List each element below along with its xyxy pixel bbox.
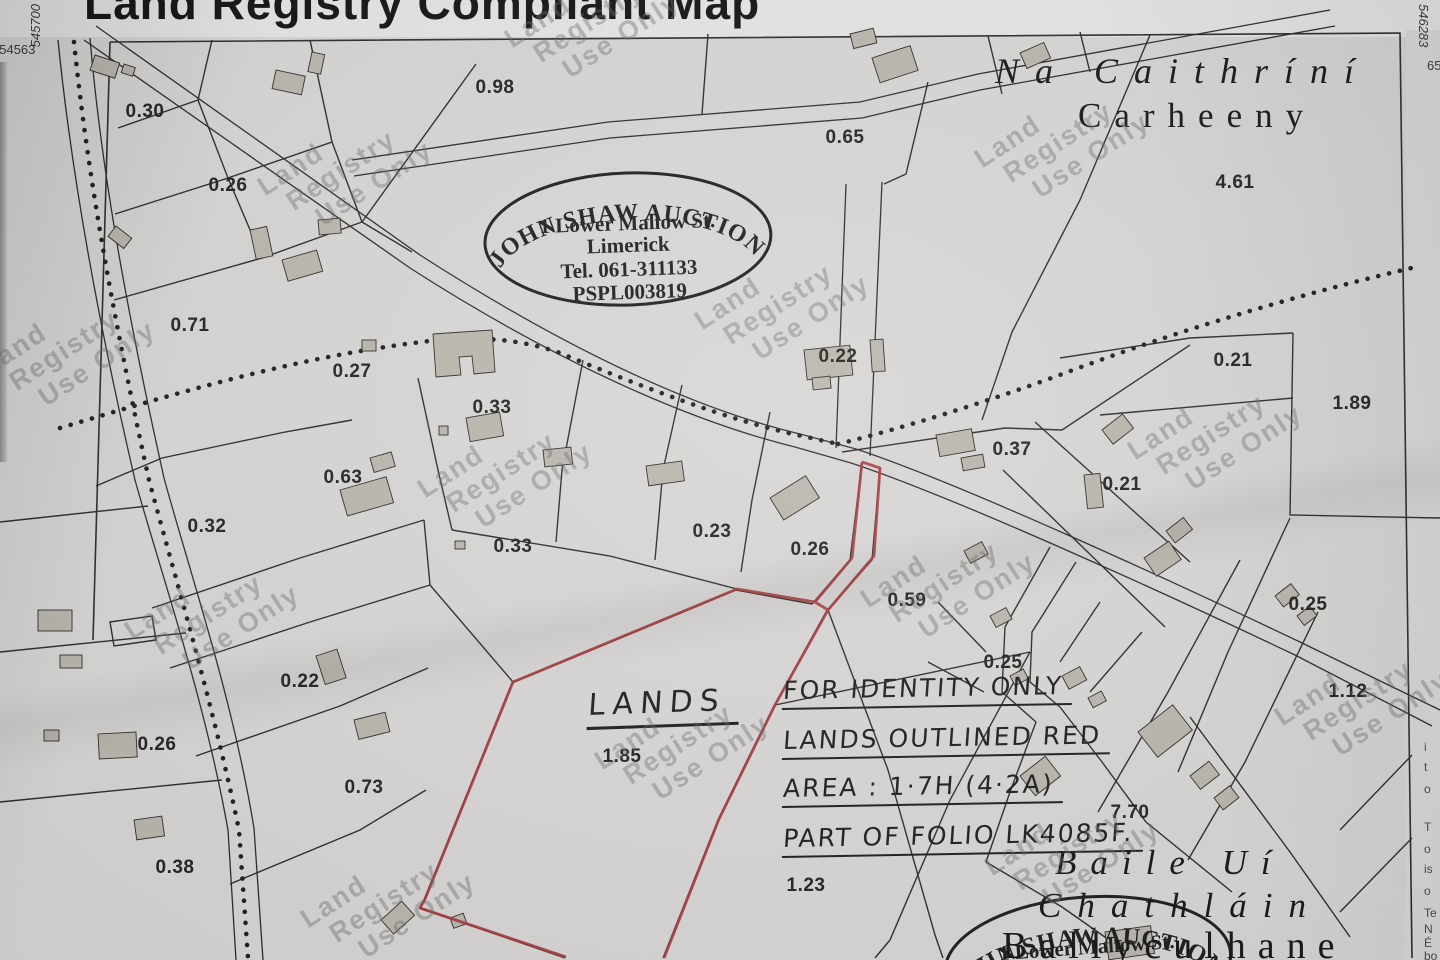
parcel-area-label: 0.27 (333, 361, 372, 383)
margin-text-fragment: bo (1424, 949, 1437, 960)
parcel-area-label: 7.70 (1111, 802, 1150, 824)
parcel-area-label: 0.71 (171, 315, 210, 337)
scanned-land-registry-map: Land Registry Compliant Map 545700 55456… (0, 0, 1440, 960)
handwritten-note-identity: FOR IDENTITY ONLY (782, 671, 1074, 710)
parcel-area-label: 0.30 (126, 101, 165, 123)
margin-text-fragment: N (1424, 922, 1433, 936)
margin-text-fragment: i (1424, 740, 1427, 754)
margin-text-fragment: is (1424, 862, 1433, 876)
margin-text-fragment: É (1424, 936, 1432, 950)
parcel-area-label: 0.23 (693, 521, 732, 543)
map-canvas (0, 0, 1440, 960)
parcel-area-label: 0.59 (888, 590, 927, 612)
parcel-area-label: 0.73 (345, 777, 384, 799)
parcel-area-label: 0.37 (993, 439, 1032, 461)
handwritten-note-outlined-red: LANDS OUTLINED RED (782, 720, 1112, 760)
townland-name-irish-top: Na Caithríní (995, 50, 1370, 92)
parcel-area-label: 1.23 (787, 875, 826, 897)
parcel-area-label: 4.61 (1216, 172, 1255, 194)
parcel-area-label: 0.32 (188, 516, 227, 538)
parcel-area-label: 0.25 (984, 652, 1023, 674)
parcel-area-label: 1.85 (603, 746, 642, 768)
parcel-area-label: 0.22 (819, 346, 858, 368)
margin-text-fragment: o (1424, 842, 1431, 856)
townland-name-english-bottom: Ballyculhane (1002, 924, 1346, 960)
handwritten-lands-label: LANDS (587, 683, 741, 730)
parcel-area-label: 0.33 (494, 536, 533, 558)
margin-text-fragment: t (1424, 760, 1427, 774)
handwritten-note-folio: PART OF FOLIO LK4085F. (782, 818, 1145, 858)
stamp-licence: PSPL003819 (572, 278, 687, 306)
handwritten-note-area: AREA : 1·7H (4·2A) (782, 769, 1065, 808)
parcel-area-label: 0.33 (473, 397, 512, 419)
parcel-area-label: 0.26 (209, 175, 248, 197)
parcel-area-label: 0.25 (1289, 594, 1328, 616)
margin-text-fragment: Te (1424, 906, 1437, 920)
parcel-area-label: 0.21 (1214, 350, 1253, 372)
parcel-area-label: 0.63 (324, 467, 363, 489)
parcel-area-label: 0.21 (1103, 474, 1142, 496)
parcel-area-label: 0.38 (156, 857, 195, 879)
townland-name-english-top: Carheeny (1078, 96, 1316, 136)
parcel-area-label: 0.26 (138, 734, 177, 756)
parcel-area-label: 1.12 (1329, 681, 1368, 703)
stamp-city: Limerick (586, 232, 670, 259)
townland-name-irish-bottom-2: Chathláin (1038, 886, 1322, 926)
margin-text-fragment: o (1424, 782, 1431, 796)
parcel-area-label: 0.26 (791, 539, 830, 561)
parcel-area-label: 1.89 (1333, 393, 1372, 415)
margin-text-fragment: T (1424, 820, 1431, 834)
margin-text-fragment: o (1424, 884, 1431, 898)
auctioneer-stamp: JOHN SHAW AUCTIONEERS 1 Lower Mallow St.… (475, 161, 780, 321)
parcel-area-label: 0.98 (476, 77, 515, 99)
parcel-area-label: 0.22 (281, 671, 320, 693)
parcel-area-label: 0.65 (826, 127, 865, 149)
roads (58, 10, 1440, 960)
